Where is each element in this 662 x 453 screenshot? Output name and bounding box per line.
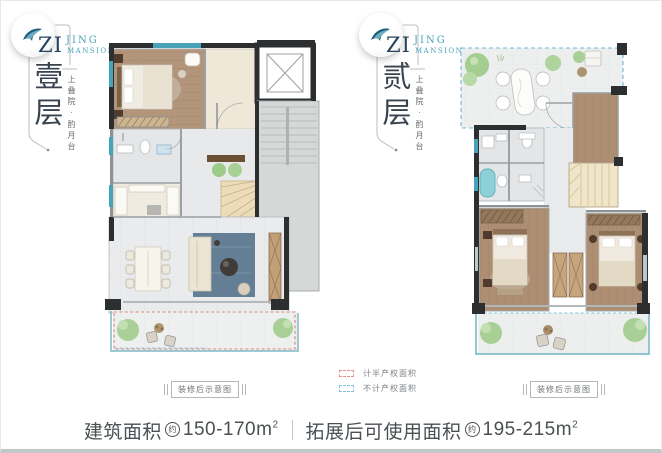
caption-side-bars	[242, 384, 246, 395]
tagline-vertical: 上叠院·酌月台	[67, 75, 75, 153]
bathrooms-level2	[478, 128, 544, 201]
bedroom-left-level2	[479, 208, 549, 311]
kitchen-level1	[113, 183, 181, 217]
half-property-swatch	[339, 370, 354, 377]
caption-floor2: 装修后示意图	[520, 381, 608, 398]
logo-jing: JING	[66, 36, 99, 46]
approx-circle: 约	[165, 422, 180, 437]
no-property-swatch	[339, 385, 354, 392]
living-dining-room	[109, 217, 289, 313]
tagline-vertical: 上叠院·酌月台	[415, 75, 423, 153]
interior-stairs-level2	[569, 163, 618, 207]
bathroom-level1	[113, 129, 181, 183]
caption-text: 装修后示意图	[530, 381, 598, 398]
half-property-label: 计半产权面积	[363, 368, 417, 379]
wardrobes-center	[553, 253, 583, 297]
caption-text: 装修后示意图	[171, 381, 239, 398]
bedroom-right-level2	[586, 213, 646, 311]
entry-hall-level1	[205, 49, 257, 129]
usable-area-label: 拓展后可使用面积	[306, 417, 462, 444]
legend-row-half-property: 计半产权面积	[339, 368, 417, 379]
built-area-value: 150-170m2	[183, 419, 279, 441]
floor2-label: 贰层	[378, 61, 410, 133]
caption-side-bars	[601, 384, 605, 395]
caption-side-bars	[164, 384, 168, 395]
floor-plan-level2	[441, 41, 656, 359]
interior-stairs-level1	[221, 181, 257, 217]
area-summary: 建筑面积 约 150-170m2 拓展后可使用面积 约 195-215m2	[1, 415, 661, 445]
built-area-label: 建筑面积	[84, 417, 162, 444]
caption-floor1: 装修后示意图	[161, 381, 249, 398]
divider-line	[292, 420, 293, 440]
elevator-shaft	[257, 45, 313, 101]
logo-zi: ZI	[38, 35, 63, 56]
legend: 计半产权面积 不计产权面积	[339, 368, 417, 398]
logo-zi: ZI	[386, 35, 411, 56]
no-property-label: 不计产权面积	[363, 383, 417, 394]
usable-area-value: 195-215m2	[483, 419, 579, 441]
terrace-level1	[111, 311, 298, 351]
floorplan-sheet: ZI JING MANSION 壹层 上叠院·酌月台 ZI JING MANSI…	[0, 0, 662, 453]
caption-side-bars	[523, 384, 527, 395]
floor-plan-level1	[97, 37, 337, 359]
approx-circle: 约	[465, 422, 480, 437]
balcony-level2	[476, 313, 649, 354]
floor1-label: 壹层	[30, 61, 62, 133]
bedroom-level1	[111, 49, 205, 129]
legend-row-no-property: 不计产权面积	[339, 383, 417, 394]
